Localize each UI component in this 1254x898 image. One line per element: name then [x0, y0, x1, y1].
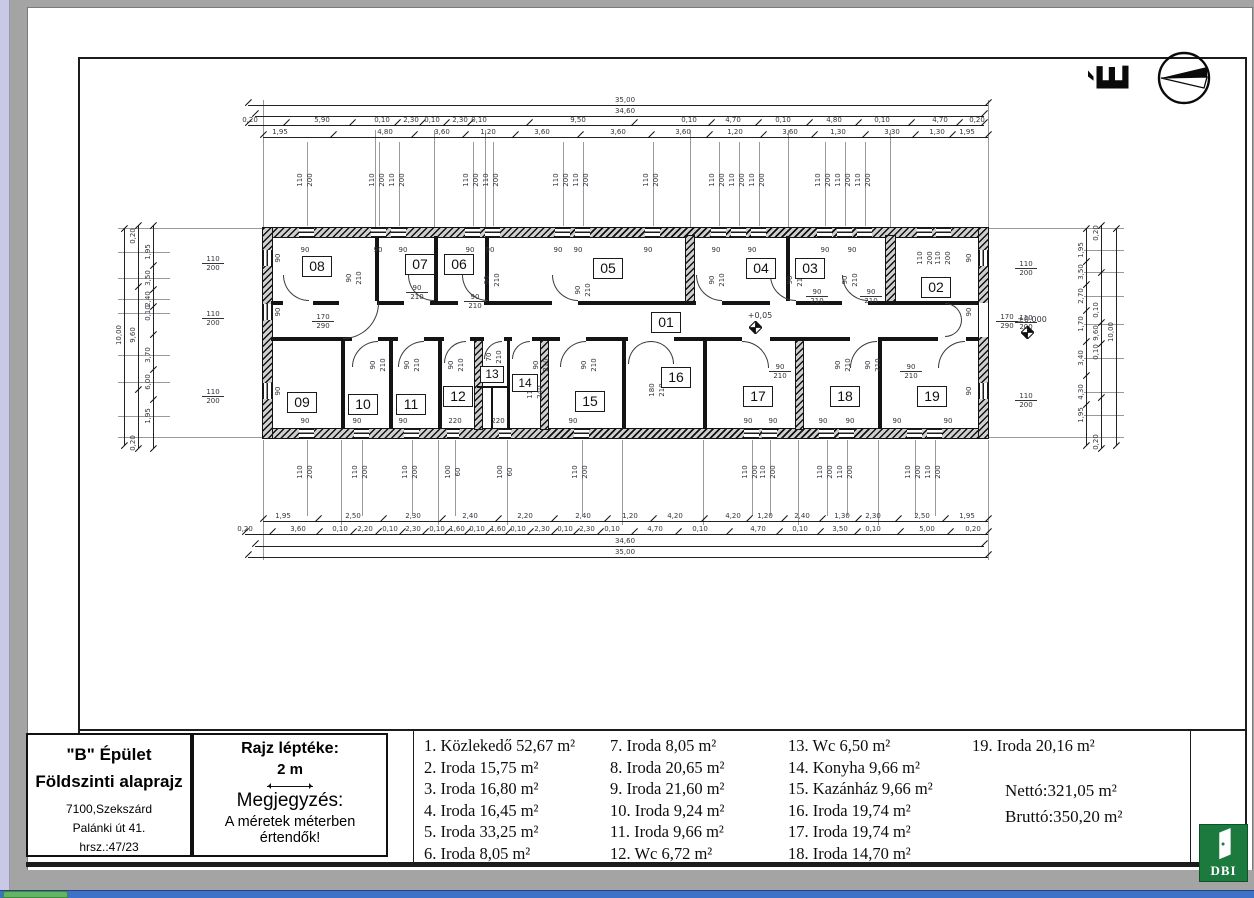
frac-numerator: 90: [900, 363, 922, 372]
dim-line: [1116, 228, 1117, 445]
dim-label: 9,60: [1092, 325, 1100, 341]
note-line2: értendők!: [194, 830, 386, 846]
room-label: 09: [287, 392, 317, 413]
note-heading: Megjegyzés:: [194, 790, 386, 812]
level-marker-icon: [749, 321, 762, 334]
window-label: 210: [718, 273, 726, 286]
window: [465, 228, 480, 237]
window-label: 110: [759, 465, 767, 478]
window-label: 110: [571, 465, 579, 478]
window-label: 110: [351, 465, 359, 478]
legend-item: 11. Iroda 9,66 m²: [610, 821, 724, 843]
dim-label: 90: [574, 246, 583, 254]
room-label: 12: [443, 386, 473, 407]
wall: [796, 341, 803, 429]
extension-line: [890, 130, 891, 228]
window-label: 210: [874, 358, 882, 371]
dim-label: 6,00: [144, 374, 152, 390]
wall: [622, 341, 626, 429]
dim-label: 3,60: [534, 128, 550, 136]
window: [979, 250, 988, 266]
frame-top: [78, 57, 1246, 59]
door-opening: [552, 301, 578, 305]
window-label: 90: [786, 276, 794, 285]
window-label: 110: [836, 465, 844, 478]
door-label: 170290: [312, 313, 334, 330]
dim-label: 0,10: [471, 116, 487, 124]
dim-label: 90: [554, 246, 563, 254]
dim-label: 0,20: [965, 525, 981, 533]
window-label: 210: [844, 358, 852, 371]
frac-numerator: 110: [1015, 260, 1037, 269]
dim-label: 2,40: [575, 512, 591, 520]
room-label: 03: [795, 258, 825, 279]
title-block: "B" Épület Földszinti alaprajz 7100,Szek…: [26, 733, 192, 857]
north-letter: É: [1089, 62, 1140, 92]
dim-label: 1,20: [622, 512, 638, 520]
window-label: 200: [378, 173, 386, 186]
dim-label: 1,20: [727, 128, 743, 136]
dim-label: 1,95: [1077, 407, 1085, 423]
door-arc: [512, 341, 530, 359]
dim-label: 0,10: [510, 525, 526, 533]
dim-label: 1,30: [830, 128, 846, 136]
dbi-logo: DBI: [1199, 824, 1248, 882]
window: [574, 429, 589, 438]
window: [404, 429, 419, 438]
frac-numerator: 90: [464, 293, 486, 302]
room-label: 13: [480, 366, 504, 383]
extension-line: [988, 440, 989, 560]
window-label: 110: [368, 173, 376, 186]
dim-label: 0,10: [424, 116, 440, 124]
level-marker-icon: [1021, 326, 1034, 339]
dim-label: 2,30: [405, 525, 421, 533]
dim-label: 90: [301, 246, 310, 254]
compass-icon: [1156, 50, 1212, 106]
extension-line: [1084, 272, 1124, 273]
dim-label: 10,00: [1107, 322, 1115, 342]
legend-item: 16. Iroda 19,74 m²: [788, 800, 933, 822]
dim-label: 0,10: [865, 525, 881, 533]
north-symbol: É: [1088, 52, 1140, 102]
dim-label: 3,30: [884, 128, 900, 136]
window-label: 110: [904, 465, 912, 478]
window-label: 200: [581, 465, 589, 478]
window: [979, 383, 988, 399]
dim-label: 0,20: [237, 525, 253, 533]
window-label: 200: [652, 173, 660, 186]
frac-denominator: 290: [996, 322, 1018, 330]
door-arc: [938, 341, 965, 368]
frac-numerator: 110: [1015, 392, 1037, 401]
window-label: 110: [934, 251, 942, 264]
dim-label: 0,20: [129, 228, 137, 244]
window-label: 90: [574, 286, 582, 295]
window-label: 110: [388, 173, 396, 186]
legend-column-4: 19. Iroda 20,16 m²: [972, 735, 1095, 757]
dim-label: 4,70: [647, 525, 663, 533]
room-label: 08: [302, 256, 332, 277]
dim-line: [263, 521, 988, 522]
dim-label: 5,90: [314, 116, 330, 124]
dim-label: 0,10: [557, 525, 573, 533]
window: [839, 429, 854, 438]
scale-bar: [267, 780, 313, 787]
dim-label: 3,60: [675, 128, 691, 136]
window-label: 200: [306, 173, 314, 186]
window-label: 100: [496, 465, 504, 478]
dim-label: 1,95: [1077, 242, 1085, 258]
extension-line: [263, 440, 264, 560]
window: [499, 429, 511, 438]
door-opening: [979, 303, 988, 337]
dim-label: 2,20: [517, 512, 533, 520]
frac-denominator: 200: [202, 397, 224, 405]
door-opening: [444, 337, 470, 341]
frac-denominator: 200: [1015, 401, 1037, 409]
window: [819, 429, 834, 438]
dim-label: 1,95: [959, 128, 975, 136]
legend-column-2: 7. Iroda 8,05 m²8. Iroda 20,65 m²9. Irod…: [610, 735, 724, 865]
frac-denominator: 200: [1015, 269, 1037, 277]
window: [447, 429, 459, 438]
extension-line: [788, 130, 789, 228]
window: [731, 228, 746, 237]
legend-item: 4. Iroda 16,45 m²: [424, 800, 575, 822]
window-label: 210: [413, 358, 421, 371]
frac-denominator: 210: [900, 372, 922, 380]
dim-line: [263, 137, 988, 138]
dim-label: 90: [944, 417, 953, 425]
window-label: 110: [462, 173, 470, 186]
building-title: "B" Épület: [28, 745, 190, 765]
address-city: 7100,Szekszárd: [28, 802, 190, 816]
window-label: 200: [306, 465, 314, 478]
dim-label: 2,30: [865, 512, 881, 520]
dim-label: 0,20: [1092, 434, 1100, 450]
dim-label: 0,10: [374, 116, 390, 124]
dim-label: 0,10: [144, 305, 152, 321]
dim-label: 35,00: [615, 548, 635, 556]
window: [744, 429, 759, 438]
dim-label: 90: [301, 417, 310, 425]
room-label: 11: [396, 394, 426, 415]
dim-label: 1,20: [757, 512, 773, 520]
wall: [507, 341, 510, 429]
frac-denominator: 200: [202, 264, 224, 272]
window-label: 110: [296, 173, 304, 186]
window-label: 110200: [1015, 260, 1037, 277]
frac-denominator: 210: [806, 297, 828, 305]
extension-line: [703, 440, 704, 525]
window-label: 110: [572, 173, 580, 186]
dim-label: 90: [965, 387, 973, 396]
legend-item: 9. Iroda 21,60 m²: [610, 778, 724, 800]
extension-line: [118, 437, 170, 438]
window: [857, 228, 872, 237]
dim-label: 4,70: [932, 116, 948, 124]
dim-label: 0,10: [332, 525, 348, 533]
room-label: 18: [830, 386, 860, 407]
dim-label: 90: [399, 417, 408, 425]
window-label: 200: [934, 465, 942, 478]
window-label: 90: [403, 361, 411, 370]
window-label: 210: [851, 273, 859, 286]
window-label: 90: [345, 274, 353, 283]
room-label: 02: [921, 277, 951, 298]
legend-item: 5. Iroda 33,25 m²: [424, 821, 575, 843]
window: [263, 304, 272, 320]
frame-right: [1245, 57, 1247, 865]
extension-line: [1084, 437, 1124, 438]
window-label: 110200: [202, 310, 224, 327]
dim-label: 1,70: [1077, 316, 1085, 332]
door-arc: [651, 341, 674, 364]
window: [762, 429, 777, 438]
dim-label: 1,30: [929, 128, 945, 136]
dim-label: 35,00: [615, 96, 635, 104]
dim-label: 4,80: [826, 116, 842, 124]
room-label: 19: [917, 386, 947, 407]
extension-line: [434, 130, 435, 228]
scale-heading: Rajz léptéke:: [194, 740, 386, 758]
window-label: 210: [495, 350, 503, 363]
scale-value: 2 m: [194, 761, 386, 778]
wall: [703, 341, 707, 429]
window-label: 210: [379, 358, 387, 371]
total-line: Nettó:321,05 m²: [1005, 778, 1123, 804]
window: [263, 383, 272, 399]
dim-label: 90: [965, 254, 973, 263]
frac-denominator: 210: [769, 372, 791, 380]
window-label: 200: [492, 173, 500, 186]
window-label: 200: [582, 173, 590, 186]
window-label: 110: [482, 173, 490, 186]
door-label: 90210: [860, 288, 882, 305]
window-label: 110: [642, 173, 650, 186]
window-label: 200: [718, 173, 726, 186]
dim-label: 90: [819, 417, 828, 425]
window: [485, 228, 500, 237]
window-label: 90: [483, 276, 491, 285]
dim-label: 1,95: [275, 512, 291, 520]
window: [371, 228, 386, 237]
extension-line: [160, 437, 263, 438]
dim-label: 0,10: [382, 525, 398, 533]
window: [299, 228, 314, 237]
legend-item: 18. Iroda 14,70 m²: [788, 843, 933, 865]
frac-numerator: 170: [996, 313, 1018, 322]
extension-line: [160, 228, 263, 229]
screen: { "north_symbol": { "letter": "É" }, "ti…: [0, 0, 1254, 898]
dim-label: 2,40: [462, 512, 478, 520]
dim-label: 2,30: [579, 525, 595, 533]
door-arc: [945, 303, 962, 320]
dim-label: 1,95: [272, 128, 288, 136]
dim-label: 3,40: [1077, 350, 1085, 366]
window-label: 60: [454, 468, 462, 477]
window-label: 110: [814, 173, 822, 186]
door-icon: [1211, 827, 1237, 863]
legend-column-3: 13. Wc 6,50 m²14. Konyha 9,66 m²15. Kazá…: [788, 735, 933, 865]
window-label: 210: [542, 358, 550, 371]
window: [645, 228, 660, 237]
window-label: 200: [758, 173, 766, 186]
frac-denominator: 210: [860, 297, 882, 305]
frac-numerator: 90: [406, 284, 428, 293]
window: [391, 228, 406, 237]
dim-label: 0,10: [1092, 302, 1100, 318]
floor-title: Földszinti alaprajz: [28, 772, 190, 792]
extension-line: [1084, 250, 1124, 251]
window: [263, 250, 272, 266]
window-label: 110: [748, 173, 756, 186]
frac-numerator: 110: [202, 388, 224, 397]
wall: [886, 236, 895, 301]
frac-denominator: 210: [464, 302, 486, 310]
frac-numerator: 90: [769, 363, 791, 372]
dim-label: 3,70: [144, 347, 152, 363]
window-label: 210: [584, 283, 592, 296]
dim-label: 1,20: [480, 128, 496, 136]
door-arc: [343, 303, 379, 339]
dim-label: 90: [353, 417, 362, 425]
window-label: 200: [846, 465, 854, 478]
dim-line: [138, 225, 139, 448]
door-label: 170290: [996, 313, 1018, 330]
parcel-number: hrsz.:47/23: [28, 840, 190, 854]
extension-line: [438, 440, 439, 525]
dim-line: [248, 125, 984, 126]
window-label: 200: [926, 251, 934, 264]
room-label: 06: [444, 254, 474, 275]
window-label: 180: [648, 383, 656, 396]
dim-line: [124, 228, 125, 445]
dim-label: 2,30: [534, 525, 550, 533]
wall: [341, 341, 345, 429]
dim-label: 2,30: [403, 116, 419, 124]
dim-label: 90: [965, 308, 973, 317]
frac-denominator: 290: [312, 322, 334, 330]
extension-line: [1084, 358, 1124, 359]
dbi-logo-text: DBI: [1210, 863, 1236, 879]
dim-label: 4,70: [750, 525, 766, 533]
window: [927, 429, 942, 438]
window: [555, 228, 570, 237]
dim-label: 4,20: [667, 512, 683, 520]
window: [299, 429, 314, 438]
dim-label: 0,10: [874, 116, 890, 124]
window-label: 200: [562, 173, 570, 186]
dim-label: 9,50: [570, 116, 586, 124]
dim-label: 90: [846, 417, 855, 425]
legend-item: 8. Iroda 20,65 m²: [610, 757, 724, 779]
window-label: 210: [355, 271, 363, 284]
window: [711, 228, 726, 237]
window: [751, 228, 766, 237]
dim-label: 2,40: [794, 512, 810, 520]
window-label: 90: [834, 361, 842, 370]
window-label: 100: [444, 465, 452, 478]
window-label: 60: [506, 468, 514, 477]
window-label: 110: [708, 173, 716, 186]
frac-numerator: 110: [202, 310, 224, 319]
window-label: 110: [741, 465, 749, 478]
dim-label: 90: [744, 417, 753, 425]
dim-label: 220: [491, 417, 504, 425]
dim-label: 4,70: [725, 116, 741, 124]
door-opening: [404, 301, 430, 305]
dim-label: 90: [644, 246, 653, 254]
wall: [438, 341, 442, 429]
legend-item: 17. Iroda 19,74 m²: [788, 821, 933, 843]
extension-line: [1084, 324, 1124, 325]
dim-label: 34,60: [615, 107, 635, 115]
legend-item: 14. Konyha 9,66 m²: [788, 757, 933, 779]
window-label: 110200: [202, 255, 224, 272]
dim-label: 90: [848, 246, 857, 254]
dim-label: 1,60: [449, 525, 465, 533]
dim-label: 3,60: [782, 128, 798, 136]
note-line1: A méretek méterben: [194, 814, 386, 830]
dim-label: 0,10: [775, 116, 791, 124]
dim-label: 90: [893, 417, 902, 425]
window: [354, 429, 369, 438]
door-opening: [770, 301, 796, 305]
dim-label: 0,10: [681, 116, 697, 124]
window-label: 210: [493, 273, 501, 286]
window-label: 90: [369, 361, 377, 370]
window: [837, 228, 852, 237]
dim-line: [248, 105, 988, 106]
frac-numerator: 170: [312, 313, 334, 322]
window-label: 210: [457, 358, 465, 371]
door-label: 90210: [464, 293, 486, 310]
window-label: 110: [834, 173, 842, 186]
window-label: 110: [728, 173, 736, 186]
legend-item: 10. Iroda 9,24 m²: [610, 800, 724, 822]
window-label: 200: [769, 465, 777, 478]
dim-line: [1101, 225, 1102, 448]
dim-label: 3,50: [832, 525, 848, 533]
dim-label: 1,95: [144, 244, 152, 260]
door-label: 90210: [769, 363, 791, 380]
dim-label: 0,10: [1092, 344, 1100, 360]
legend-item: 19. Iroda 20,16 m²: [972, 735, 1095, 757]
extension-line: [341, 440, 342, 525]
legend-item: 3. Iroda 16,80 m²: [424, 778, 575, 800]
wall: [389, 341, 393, 429]
room-label: 10: [348, 394, 378, 415]
dim-label: 3,50: [1077, 264, 1085, 280]
dim-label: 90: [569, 417, 578, 425]
dim-tick: [150, 445, 157, 452]
door-arc: [945, 320, 962, 337]
window-label: 200: [738, 173, 746, 186]
frame-legend-divider: [413, 729, 414, 863]
dim-label: 90: [274, 387, 282, 396]
dim-label: 90: [274, 308, 282, 317]
window-label: 200: [914, 465, 922, 478]
window-label: 110: [916, 251, 924, 264]
dim-label: 220: [448, 417, 461, 425]
dim-label: 4,20: [725, 512, 741, 520]
window-label: 90: [532, 361, 540, 370]
dim-label: 0,10: [792, 525, 808, 533]
door-label: 90210: [900, 363, 922, 380]
door-opening: [283, 301, 313, 305]
